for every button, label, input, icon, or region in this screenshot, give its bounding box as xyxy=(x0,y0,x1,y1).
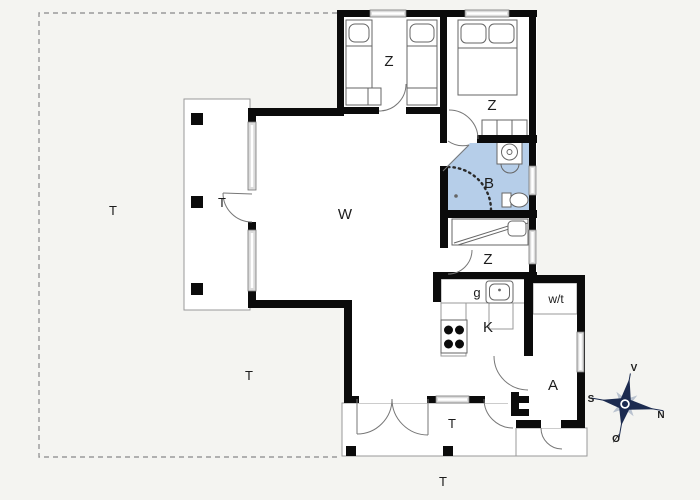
toilet-bowl xyxy=(510,193,528,207)
wall-segment xyxy=(529,275,585,283)
west-deck-terrace xyxy=(184,99,250,310)
wall-segment xyxy=(337,10,344,114)
floor-plan-page: W Z Z Z B K g w/t A T T T T T V S N Ø xyxy=(0,0,700,500)
window xyxy=(370,10,406,17)
window xyxy=(577,332,584,372)
wall-segment xyxy=(516,420,541,428)
compass-star xyxy=(585,367,669,444)
wardrobe xyxy=(482,120,527,136)
wall-segment xyxy=(440,166,448,212)
pillow xyxy=(461,24,486,43)
terrace-label-garden-west: T xyxy=(109,203,117,218)
window xyxy=(248,230,256,291)
terrace-label-south-ground: T xyxy=(439,474,447,489)
room-label-pantry: g xyxy=(473,285,480,300)
deck-post xyxy=(191,283,203,295)
bedroom-small-furniture xyxy=(452,219,528,245)
window xyxy=(529,166,536,195)
burner xyxy=(444,340,453,349)
bedside-cabinet xyxy=(368,88,381,105)
deck-post xyxy=(191,196,203,208)
wall-segment xyxy=(469,396,485,403)
deck-post xyxy=(191,113,203,125)
bedside-cabinet xyxy=(346,88,368,105)
wall-segment xyxy=(477,135,537,143)
room-label-utility: w/t xyxy=(547,292,564,306)
compass-rose: V S N Ø xyxy=(585,363,669,445)
window xyxy=(436,396,469,403)
burner xyxy=(455,326,464,335)
terrace-post xyxy=(443,446,453,456)
room-label-bedroom-right: Z xyxy=(487,97,496,114)
pillow xyxy=(489,24,514,43)
terrace-label-garden-south: T xyxy=(245,368,253,383)
room-label-bedroom-small: Z xyxy=(483,251,492,268)
compass-label-west: V xyxy=(631,363,638,374)
room-label-bathroom: B xyxy=(484,175,494,192)
wall-segment xyxy=(433,272,537,279)
wall-segment xyxy=(337,107,379,114)
terrace-outline xyxy=(516,428,587,456)
wall-segment xyxy=(511,409,529,416)
wall-segment xyxy=(406,107,447,114)
pillow xyxy=(349,24,369,42)
wall-segment xyxy=(344,300,352,403)
burner xyxy=(444,326,453,335)
compass-label-north: N xyxy=(657,410,664,421)
burner xyxy=(455,340,464,349)
wall-segment xyxy=(440,10,447,143)
room-label-kitchen: K xyxy=(483,319,493,336)
terrace-outline xyxy=(342,403,516,456)
window xyxy=(529,230,536,264)
floor-plan-drawing: W Z Z Z B K g w/t A T T T T T V S N Ø xyxy=(0,0,700,500)
terrace-label-south-terrace: T xyxy=(448,416,456,431)
room-label-living: W xyxy=(338,206,353,223)
wall-segment xyxy=(248,300,352,308)
compass-label-south: S xyxy=(588,394,595,405)
bedside-cabinet xyxy=(407,88,437,105)
pillow xyxy=(508,221,526,236)
terrace-post xyxy=(346,446,356,456)
wall-segment xyxy=(524,279,533,356)
terrace-label-deck: T xyxy=(218,195,226,210)
kitchen-sink-drain xyxy=(498,289,501,292)
window xyxy=(465,10,509,17)
wall-segment xyxy=(440,218,448,248)
stove xyxy=(441,320,467,353)
wall-segment xyxy=(440,210,537,218)
room-label-bedroom-left: Z xyxy=(384,53,393,70)
room-label-annex: A xyxy=(548,377,558,394)
wall-segment xyxy=(433,272,441,302)
compass-label-east: Ø xyxy=(612,434,620,445)
wall-segment xyxy=(248,108,344,116)
window xyxy=(248,122,256,190)
shower-drain xyxy=(454,194,458,198)
pillow xyxy=(410,24,434,42)
wall-segment xyxy=(561,420,585,428)
